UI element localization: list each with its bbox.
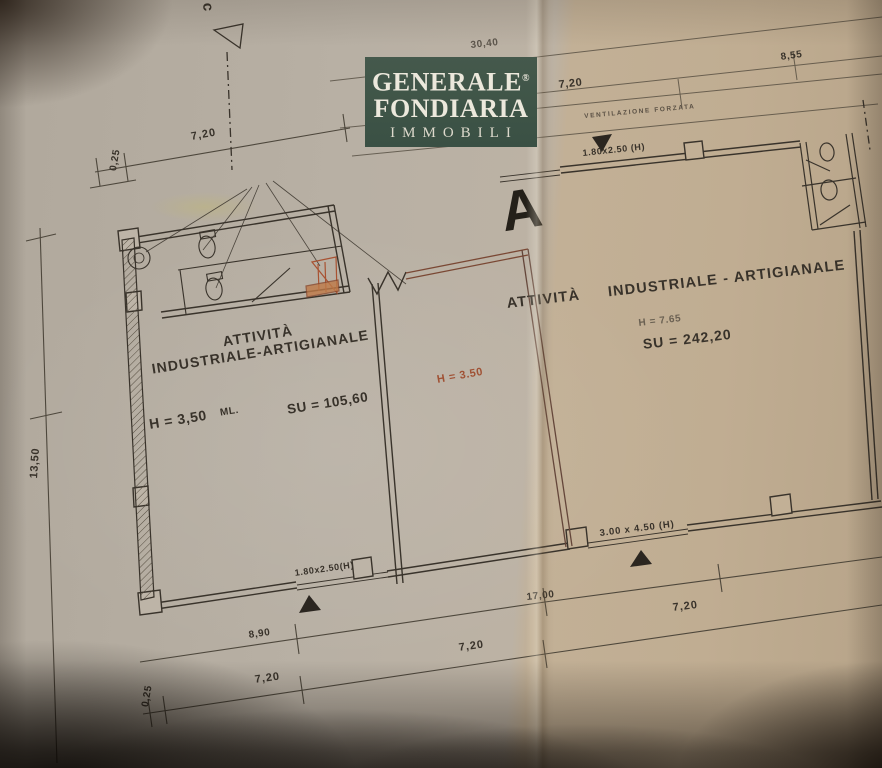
section-label-c: c: [199, 2, 217, 12]
stairs-triangle: [306, 257, 339, 297]
dimension-lines: [26, 114, 882, 763]
toilet-icon: [819, 142, 835, 162]
logo-line-immobili: IMMOBILI: [365, 125, 537, 142]
bathroom-right: [800, 133, 866, 230]
room-left-height-unit: ML.: [219, 405, 240, 419]
logo-line-generale: GENERALE®: [365, 66, 537, 96]
logo-text-generale: GENERALE: [372, 68, 522, 97]
registered-mark: ®: [522, 73, 530, 84]
door-marker-bottom-right: [630, 550, 652, 567]
dim-left-height: 13,50: [28, 448, 42, 479]
logo-line-fondiaria: FONDIARIA: [365, 96, 537, 122]
leader-lines: [146, 181, 406, 288]
dim-top-mid: 7,20: [558, 77, 583, 91]
generale-fondiaria-logo: GENERALE® FONDIARIA IMMOBILI: [365, 57, 537, 147]
floorplan-photo: 30,40 8,55 7,20 VENTILAZIONE FORZATA 1.8…: [0, 0, 882, 768]
section-marker-c: [214, 24, 870, 170]
door-marker-bottom-left: [299, 595, 321, 613]
